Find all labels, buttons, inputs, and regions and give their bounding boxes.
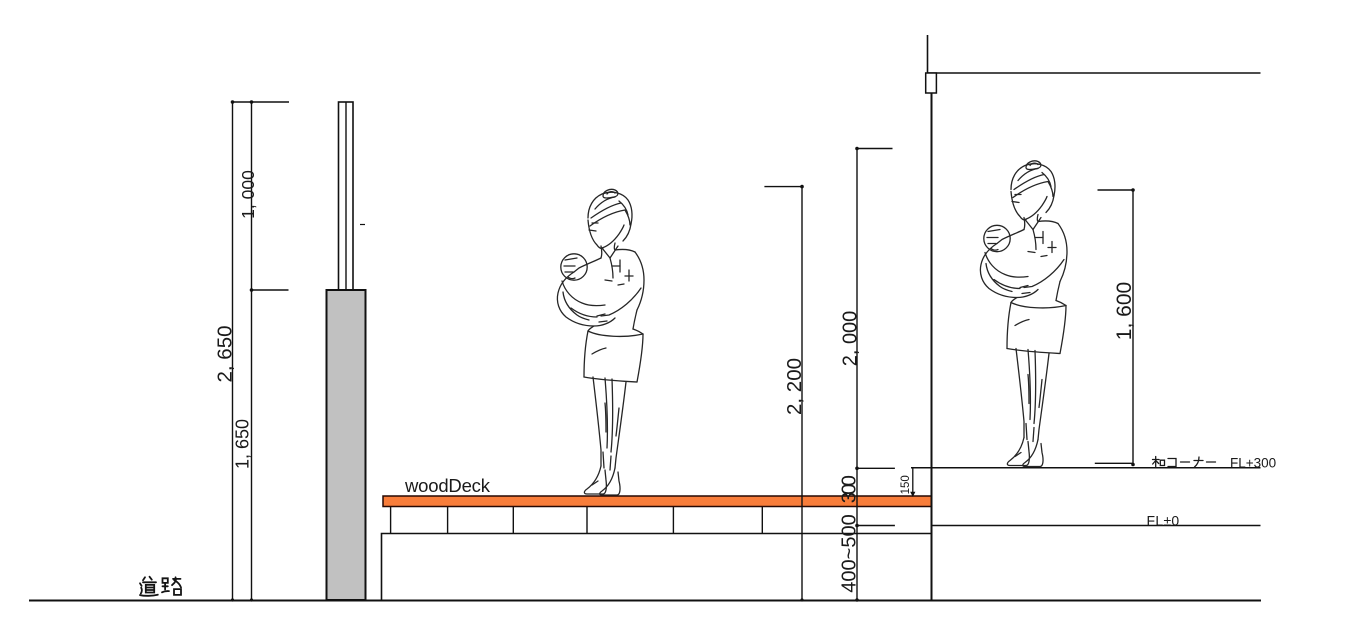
svg-text:1, 650: 1, 650: [233, 419, 253, 469]
svg-text:FL±0: FL±0: [1147, 513, 1180, 529]
svg-text:1, 600: 1, 600: [1113, 282, 1136, 340]
svg-text:2, 000: 2, 000: [840, 311, 862, 367]
svg-text:woodDeck: woodDeck: [404, 475, 491, 496]
svg-text:400~500: 400~500: [839, 514, 861, 592]
svg-text:300: 300: [839, 475, 861, 503]
svg-text:2, 200: 2, 200: [783, 358, 806, 415]
svg-text:FL+300: FL+300: [1230, 456, 1276, 471]
svg-text:1, 000: 1, 000: [238, 170, 258, 219]
svg-text:150: 150: [900, 475, 912, 494]
svg-text:2, 650: 2, 650: [214, 326, 237, 383]
